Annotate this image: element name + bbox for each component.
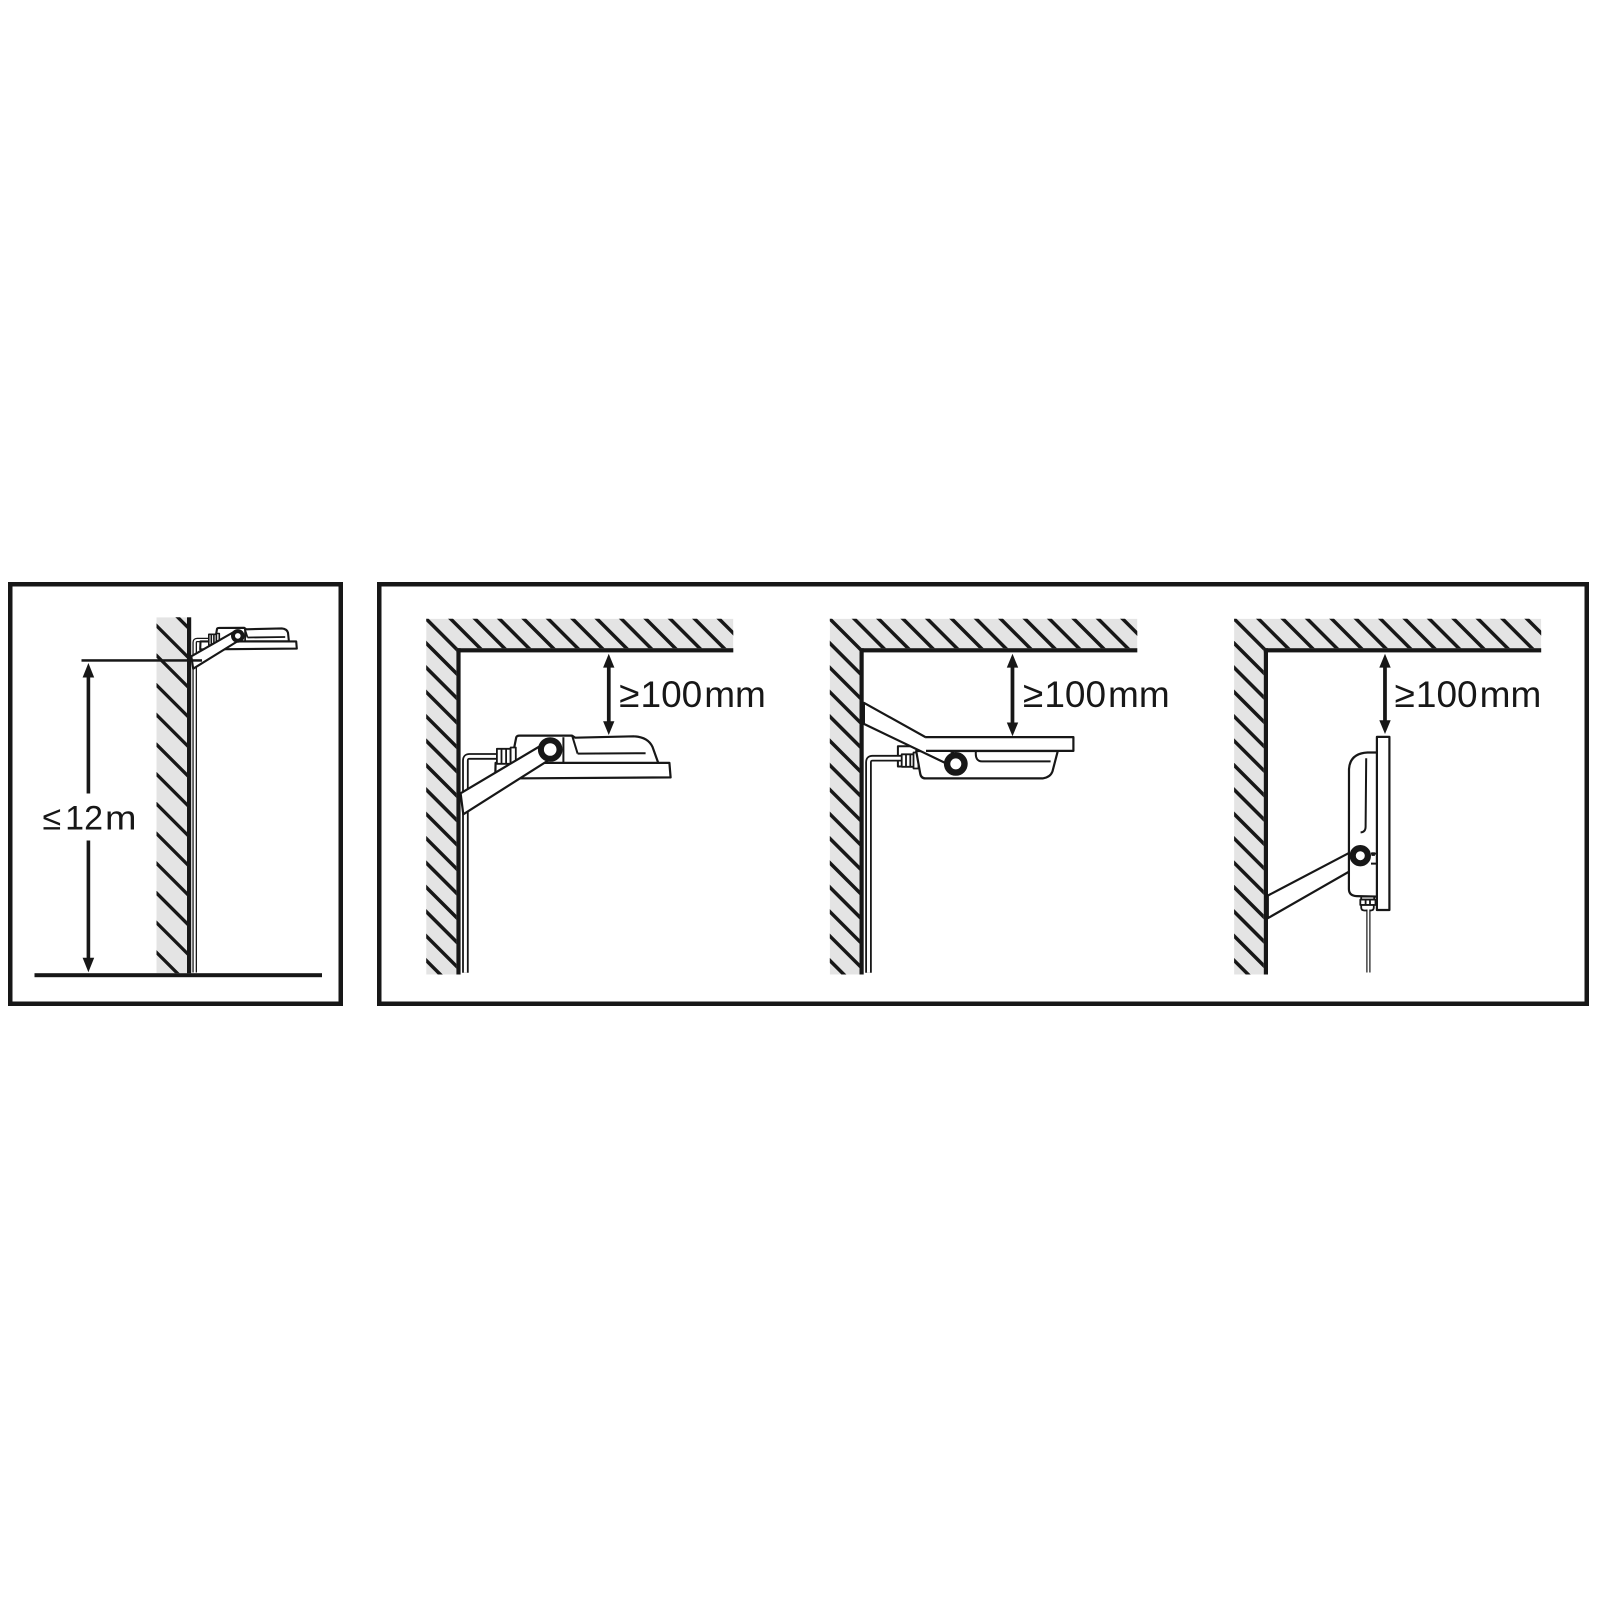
svg-text:≥100mm: ≥100mm — [619, 674, 766, 715]
svg-text:≥100mm: ≥100mm — [1023, 674, 1170, 715]
svg-text:≤12m: ≤12m — [43, 800, 137, 838]
svg-text:≥100mm: ≥100mm — [1395, 674, 1542, 715]
